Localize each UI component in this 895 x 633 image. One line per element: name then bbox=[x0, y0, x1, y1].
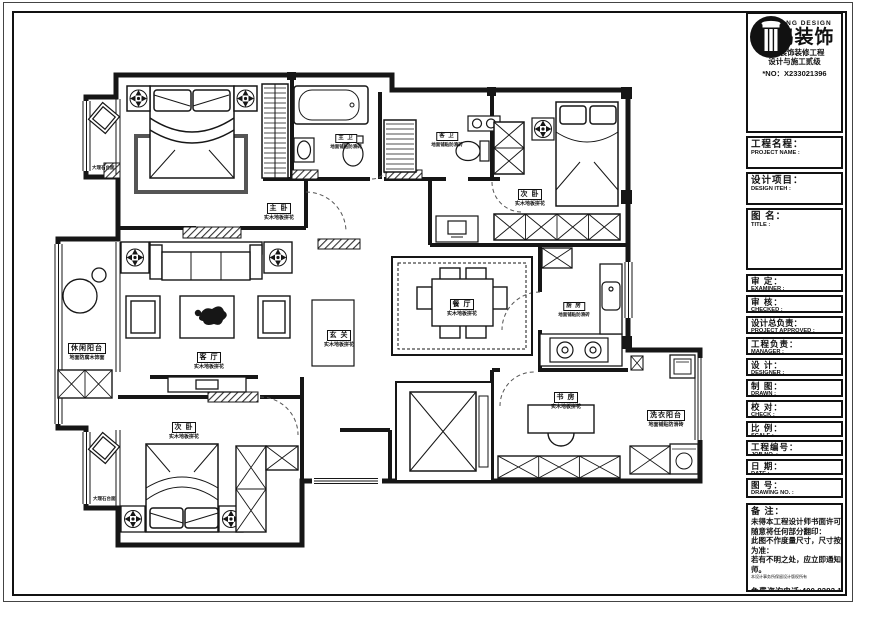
finish-annotation: 大理石台面 bbox=[92, 165, 115, 171]
master-closet bbox=[262, 84, 288, 178]
field-job-no: 工程编号： JOB NO. : bbox=[746, 440, 843, 456]
room-label: 客 厅 实木地板拼花 bbox=[194, 346, 224, 370]
field-check: 校 对： CHECK : bbox=[746, 400, 843, 418]
balcony-lounge-chair bbox=[63, 268, 106, 313]
field-project-approved: 设计总负责： PROJECT APPROVED : bbox=[746, 316, 843, 334]
field-date: 日 期： DATE : bbox=[746, 459, 843, 475]
coffee-table bbox=[180, 296, 234, 338]
field-project-name: 工程名程： PROJECT NAME : bbox=[746, 136, 843, 169]
field-scale: 比 例： SCALE : bbox=[746, 421, 843, 437]
field-drawing-no: 图 号： DRAWING NO. : bbox=[746, 478, 843, 498]
room-label: 洗衣阳台 地面铺贴防滑砖 bbox=[647, 404, 685, 428]
nanhong-logo-icon bbox=[748, 14, 794, 60]
kitchen-stove bbox=[550, 338, 608, 362]
room-label: 玄 关 实木地板拼花 bbox=[324, 324, 354, 348]
field-drawn: 制 图： DRAWN : bbox=[746, 379, 843, 397]
room-label: 主 卧 实木地板拼花 bbox=[264, 197, 294, 221]
master-bed bbox=[136, 86, 246, 192]
second-bedroom-wardrobe bbox=[236, 446, 298, 532]
title-block-logo: NANHONG DESIGN 南鸿装饰 建筑装饰装修工程 设计与施工贰级 *NO… bbox=[746, 12, 843, 133]
tv-console bbox=[168, 377, 246, 392]
room-label: 书 房 实木地板拼花 bbox=[551, 386, 581, 410]
guest-bath-shower bbox=[384, 120, 416, 172]
second-bed bbox=[146, 444, 218, 532]
hotline-number: 免费咨询电话:400 8383 168 bbox=[751, 586, 838, 592]
study-desk bbox=[528, 405, 594, 446]
fine-print: 本设计事务所保留设计版权所有 bbox=[751, 574, 838, 580]
elevator bbox=[396, 382, 492, 481]
kitchen-sink bbox=[602, 282, 620, 310]
guest-bed bbox=[556, 102, 618, 206]
room-label: 厨 房 地面铺贴防滑砖 bbox=[558, 294, 590, 318]
master-bath-sink bbox=[294, 138, 314, 162]
room-label: 次 卧 实木地板拼花 bbox=[169, 416, 199, 440]
field-title: 图 名： TITLE : bbox=[746, 208, 843, 270]
finish-annotation: 大理石台面 bbox=[93, 496, 116, 502]
dresser-desk bbox=[436, 216, 478, 242]
field-checked: 审 核： CHECKED : bbox=[746, 295, 843, 313]
remarks-block: 备 注： 未得本工程设计师书面许可不得 随意将任何部分翻印： 此图不作度量尺寸，… bbox=[746, 503, 843, 592]
room-label: 次 卧 实木地板拼花 bbox=[515, 183, 545, 207]
hall-wardrobe bbox=[494, 122, 524, 174]
sofa bbox=[150, 242, 262, 280]
room-label: 休闲阳台 地面防腐木饰面 bbox=[68, 337, 106, 361]
balcony-cabinet bbox=[58, 370, 112, 398]
field-examiner: 审 定： EXAMINER : bbox=[746, 274, 843, 292]
study-wardrobe bbox=[498, 456, 620, 478]
master-bathtub bbox=[294, 86, 368, 124]
field-designer: 设 计： DESIGNER : bbox=[746, 358, 843, 376]
drawing-sheet: 主 卧 实木地板拼花 主 卫 地面铺贴防滑砖 客 卫 地面铺贴防滑砖 次 卧 实… bbox=[0, 0, 895, 633]
guest-bedroom-wardrobe bbox=[494, 214, 620, 240]
license-number: *NO：X233021396 bbox=[762, 68, 826, 79]
bay-window-cushions bbox=[89, 103, 120, 464]
room-label: 客 卫 地面铺贴防滑砖 bbox=[431, 124, 463, 148]
room-label: 主 卫 地面铺贴防滑砖 bbox=[330, 126, 362, 150]
room-label: 餐 厅 实木地板拼花 bbox=[447, 293, 477, 317]
field-manager: 工程负责： MANAGER : bbox=[746, 337, 843, 355]
field-design-item: 设计项目： DESIGN ITEH : bbox=[746, 172, 843, 205]
